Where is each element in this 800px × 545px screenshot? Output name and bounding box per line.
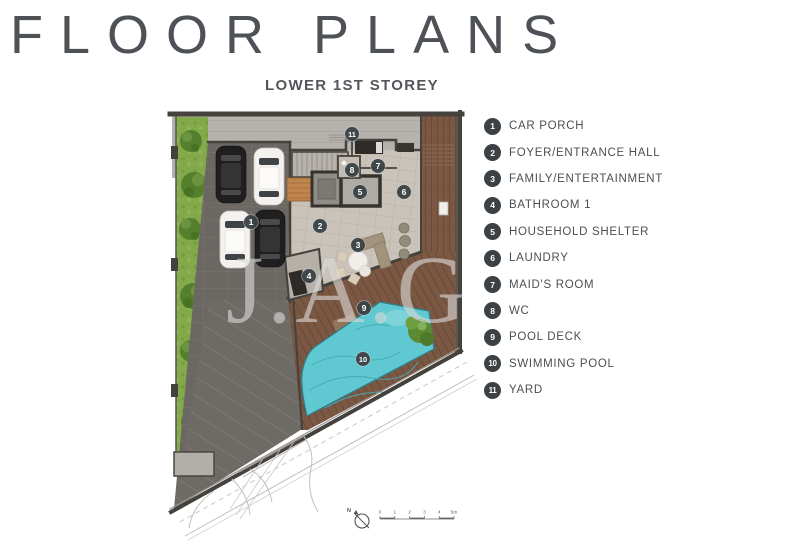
svg-text:3: 3 [356, 240, 361, 250]
legend-label: LAUNDRY [509, 252, 569, 264]
svg-text:0: 0 [379, 510, 382, 516]
plan-marker-7: 7 [371, 159, 386, 174]
legend-item-bathroom-1: 4BATHROOM 1 [484, 192, 663, 218]
svg-text:8: 8 [350, 165, 355, 175]
legend-item-wc: 8WC [484, 298, 663, 324]
svg-text:J.A.G: J.A.G [226, 236, 470, 343]
car-black-1 [216, 146, 246, 203]
plan-marker-9: 9 [357, 301, 372, 316]
legend-number-badge: 2 [484, 144, 501, 161]
svg-text:5: 5 [358, 187, 363, 197]
plan-marker-5: 5 [353, 185, 368, 200]
legend-item-foyer-entrance-hall: 2FOYER/ENTRANCE HALL [484, 139, 663, 165]
svg-text:7: 7 [376, 161, 381, 171]
legend-number-badge: 6 [484, 250, 501, 267]
legend-item-maid-s-room: 7MAID'S ROOM [484, 271, 663, 297]
maid-bed-pillow [376, 142, 382, 153]
svg-text:1: 1 [249, 217, 254, 227]
legend-item-yard: 11YARD [484, 377, 663, 403]
legend-number-badge: 4 [484, 197, 501, 214]
legend-label: BATHROOM 1 [509, 199, 591, 211]
outdoor-appliance [439, 202, 448, 215]
legend-number-badge: 8 [484, 302, 501, 319]
svg-text:N: N [347, 508, 351, 514]
legend-number-badge: 7 [484, 276, 501, 293]
north-arrow-icon: N [347, 508, 369, 528]
svg-text:4: 4 [307, 271, 312, 281]
legend-item-pool-deck: 9POOL DECK [484, 324, 663, 350]
car-white-1 [254, 148, 284, 205]
plan-marker-2: 2 [313, 219, 328, 234]
wc-basin [341, 160, 347, 166]
svg-text:11: 11 [348, 130, 356, 139]
floor-plan-page: { "header": { "title": "FLOOR PLANS", "s… [0, 0, 800, 545]
legend-number-badge: 5 [484, 223, 501, 240]
legend-item-swimming-pool: 10SWIMMING POOL [484, 351, 663, 377]
legend-item-household-shelter: 5HOUSEHOLD SHELTER [484, 219, 663, 245]
plan-marker-10: 10 [356, 352, 371, 367]
legend-label: SWIMMING POOL [509, 358, 615, 370]
svg-text:6: 6 [402, 187, 407, 197]
legend-item-car-porch: 1CAR PORCH [484, 113, 663, 139]
plan-marker-1: 1 [244, 215, 259, 230]
legend-label: POOL DECK [509, 331, 582, 343]
legend-label: HOUSEHOLD SHELTER [509, 226, 649, 238]
svg-text:5m: 5m [451, 510, 458, 516]
plan-marker-6: 6 [397, 185, 412, 200]
svg-text:2: 2 [318, 221, 323, 231]
plan-marker-11: 11 [345, 127, 360, 142]
legend-label: FAMILY/ENTERTAINMENT [509, 173, 663, 185]
legend: 1CAR PORCH2FOYER/ENTRANCE HALL3FAMILY/EN… [484, 113, 663, 403]
legend-number-badge: 9 [484, 329, 501, 346]
legend-label: CAR PORCH [509, 120, 584, 132]
legend-label: MAID'S ROOM [509, 279, 594, 291]
scale-bar: 012345m [379, 510, 458, 520]
svg-text:2: 2 [408, 510, 411, 516]
legend-label: YARD [509, 384, 543, 396]
svg-text:3: 3 [423, 510, 426, 516]
watermark: J.A.G [226, 236, 470, 343]
concrete-pad [174, 452, 214, 476]
legend-label: WC [509, 305, 530, 317]
legend-label: FOYER/ENTRANCE HALL [509, 147, 660, 159]
svg-text:10: 10 [359, 355, 367, 364]
legend-item-family-entertainment: 3FAMILY/ENTERTAINMENT [484, 166, 663, 192]
svg-text:9: 9 [362, 303, 367, 313]
svg-text:4: 4 [438, 510, 441, 516]
counter [397, 143, 414, 152]
north-arrow-and-scale: N012345m [347, 508, 457, 528]
side-deck-surface [421, 116, 456, 252]
legend-item-laundry: 6LAUNDRY [484, 245, 663, 271]
lift-car [318, 179, 335, 199]
legend-number-badge: 3 [484, 170, 501, 187]
plan-marker-4: 4 [302, 269, 317, 284]
svg-text:1: 1 [393, 510, 396, 516]
legend-number-badge: 1 [484, 118, 501, 135]
floor-plan-drawing: J.A.G 1234567891011 N012345m [0, 0, 800, 545]
legend-number-badge: 11 [484, 382, 501, 399]
plan-marker-3: 3 [351, 238, 366, 253]
plan-marker-8: 8 [345, 163, 360, 178]
legend-number-badge: 10 [484, 355, 501, 372]
